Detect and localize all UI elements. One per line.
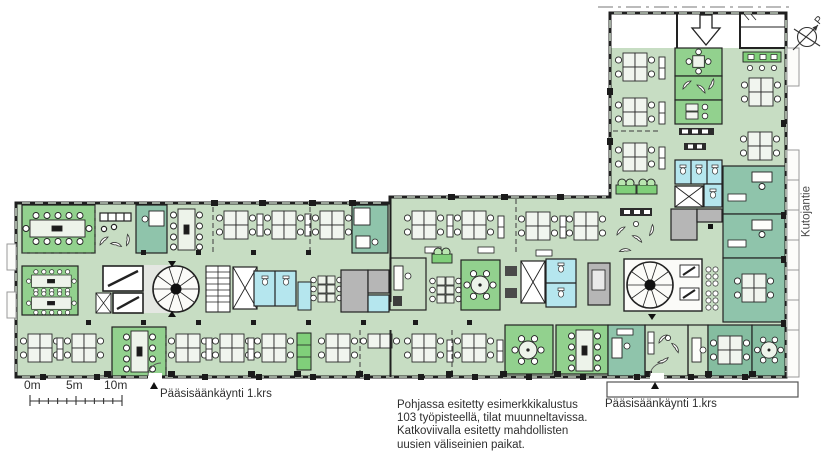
spiral-staircase xyxy=(153,266,199,312)
office-desk xyxy=(356,236,370,248)
toilet xyxy=(558,288,564,297)
toilet xyxy=(283,276,289,285)
entrance-marker-left xyxy=(150,382,158,389)
printer xyxy=(393,296,402,306)
small-meeting-room xyxy=(675,76,722,100)
note-line-3: Katkoviivalla esitetty mahdollisten xyxy=(397,425,588,438)
stool xyxy=(747,65,752,70)
desk xyxy=(686,112,698,119)
side-table xyxy=(728,194,746,201)
scale-label-5m: 5m xyxy=(66,379,83,392)
entrance-door-gap xyxy=(650,373,664,381)
wc-small xyxy=(298,282,311,310)
side-table xyxy=(617,329,633,335)
street-name-label: Kutojantie xyxy=(800,167,813,257)
small-meeting-room xyxy=(675,100,722,124)
conference-table-12 xyxy=(23,213,92,245)
toilet xyxy=(262,276,268,285)
toilet xyxy=(696,165,702,174)
toilet xyxy=(712,165,718,174)
side-table xyxy=(478,247,494,253)
stool xyxy=(771,65,776,70)
locker xyxy=(505,288,517,298)
exterior-stair xyxy=(7,292,16,318)
office-desk xyxy=(394,266,403,290)
plant-cabinet xyxy=(432,248,452,263)
office-desk xyxy=(612,338,622,358)
scale-bar xyxy=(30,395,122,406)
shelf-unit xyxy=(57,338,63,360)
elevator xyxy=(233,267,257,309)
note-line-1: Pohjassa esitetty esimerkkikalustus xyxy=(397,399,588,412)
equipment xyxy=(592,270,605,290)
shelf-unit xyxy=(498,216,504,238)
meeting-table-8 xyxy=(27,270,77,293)
note-line-4: uusien väliseinien paikat. xyxy=(397,439,588,452)
shelf-unit xyxy=(648,332,654,354)
office-chair xyxy=(624,343,630,349)
shelf-unit xyxy=(659,147,665,169)
wc-small xyxy=(368,295,389,312)
toilet xyxy=(558,263,564,272)
stool xyxy=(759,65,764,70)
shelf-unit xyxy=(659,102,665,124)
entrance-canopy xyxy=(607,382,798,397)
shelf-unit xyxy=(659,57,665,79)
technical-room xyxy=(697,209,722,222)
side-table xyxy=(536,250,552,256)
exterior-strip xyxy=(787,150,799,377)
kitchen-island xyxy=(684,143,706,150)
shelf-unit xyxy=(248,338,254,360)
stool xyxy=(633,221,638,226)
entrance-door-gap xyxy=(148,373,162,381)
scale-label-10m: 10m xyxy=(104,379,127,392)
floor-slabs xyxy=(16,13,786,377)
shelf-unit xyxy=(206,338,212,360)
desk xyxy=(686,104,698,111)
stool xyxy=(665,335,670,340)
technical-room xyxy=(368,270,389,293)
toilet xyxy=(710,189,716,198)
floor-plan-canvas: Pohjassa esitetty esimerkkikalustus 103 … xyxy=(0,0,830,460)
plant-cabinet xyxy=(616,179,636,194)
plan-note: Pohjassa esitetty esimerkkikalustus 103 … xyxy=(397,399,588,452)
spiral-staircase xyxy=(627,262,673,308)
shelf-unit xyxy=(560,216,566,238)
locker xyxy=(505,266,517,276)
office-chair xyxy=(700,347,706,353)
stool xyxy=(111,224,116,229)
shelf-unit xyxy=(447,215,453,237)
stool xyxy=(101,226,106,231)
exterior-balcony xyxy=(787,48,799,86)
staircase xyxy=(206,266,230,312)
note-line-2: 103 työpisteellä, tilat muunneltavissa. xyxy=(397,412,588,425)
elevator xyxy=(675,186,703,207)
exterior-stair xyxy=(7,244,16,270)
side-table xyxy=(728,240,746,247)
north-arrow-icon xyxy=(793,25,820,50)
technical-room xyxy=(671,209,697,240)
cabinet-green xyxy=(297,333,311,370)
toilet xyxy=(680,165,686,174)
shelf-unit xyxy=(257,214,263,236)
office-chair xyxy=(142,216,148,222)
technical-shaft xyxy=(740,13,786,48)
office-chair xyxy=(372,239,378,245)
shelf-unit xyxy=(497,340,503,362)
column xyxy=(708,224,713,229)
elevator xyxy=(521,261,545,303)
meeting-table-8b xyxy=(27,292,77,315)
entrance-label-left: Pääsisäänkäynti 1.krs xyxy=(160,388,272,401)
scale-label-0m: 0m xyxy=(24,379,41,392)
storage-closet xyxy=(354,208,370,225)
office-desk xyxy=(149,211,164,226)
chair xyxy=(702,113,708,119)
technical-room xyxy=(341,270,368,312)
plant-cabinet xyxy=(637,179,657,194)
entrance-marker-right xyxy=(651,382,659,389)
office-chair xyxy=(405,273,411,279)
chair xyxy=(702,104,708,110)
entrance-label-right: Pääsisäänkäynti 1.krs xyxy=(605,398,717,411)
